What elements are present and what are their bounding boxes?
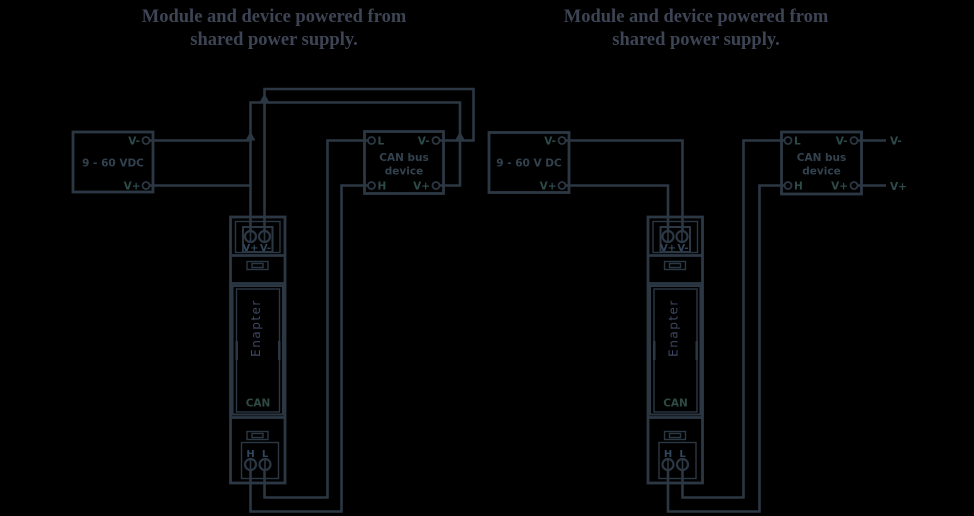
din-clip-icon	[252, 434, 263, 438]
can-vplus-label: V+	[831, 181, 848, 193]
can-device-name-line2: device	[802, 166, 840, 178]
module-side-notch	[653, 341, 656, 360]
left-can-device: CAN bus device L V- H V+	[365, 132, 444, 194]
module-side-notch	[236, 341, 239, 360]
can-h-label: H	[794, 181, 803, 193]
psu-vminus-label: V-	[544, 136, 556, 148]
can-l-terminal	[368, 137, 375, 144]
can-vminus-terminal	[851, 137, 858, 144]
psu-vplus-label: V+	[540, 181, 557, 193]
psu-vplus-terminal	[559, 182, 566, 189]
right-enapter-module: V+ V- Enapter CAN H L	[648, 217, 703, 483]
can-device-name-line2: device	[385, 166, 423, 178]
can-vminus-label: V-	[418, 136, 430, 148]
din-clip-icon	[247, 432, 268, 440]
module-vplus-label: V+	[660, 243, 676, 254]
net-vminus-label: V-	[890, 136, 902, 148]
can-vplus-terminal	[433, 182, 440, 189]
right-wire-can-l	[683, 141, 786, 498]
module-side-notch	[278, 341, 281, 360]
wiring-diagram-page: Module and device powered from shared po…	[0, 0, 974, 516]
can-vplus-label: V+	[413, 181, 430, 193]
can-vplus-terminal	[851, 182, 858, 189]
din-clip-icon	[247, 262, 268, 270]
net-vplus-label: V+	[890, 181, 907, 193]
module-port-label: CAN	[246, 398, 271, 410]
din-clip-icon	[665, 432, 686, 440]
right-wire-psu-vplus	[562, 186, 668, 237]
right-title-line2: shared power supply.	[612, 30, 779, 50]
din-clip-icon	[252, 264, 263, 268]
din-clip-icon	[665, 262, 686, 270]
psu-label: 9 - 60 VDC	[82, 158, 144, 170]
can-device-name-line1: CAN bus	[797, 152, 847, 164]
can-vminus-label: V-	[836, 136, 848, 148]
left-title-line1: Module and device powered from	[142, 7, 407, 27]
module-brand-label: Enapter	[249, 299, 263, 357]
can-device-name-line1: CAN bus	[379, 152, 429, 164]
module-vplus-label: V+	[242, 243, 258, 254]
din-clip-icon	[670, 264, 681, 268]
module-brand-label: Enapter	[667, 299, 681, 357]
module-port-label: CAN	[663, 398, 688, 410]
left-diagram: Module and device powered from shared po…	[73, 7, 474, 512]
module-vminus-label: V-	[677, 243, 688, 254]
wire-hop-arrow	[246, 132, 256, 141]
wire-hop-arrow	[260, 94, 270, 103]
din-clip-icon	[670, 434, 681, 438]
left-title-line2: shared power supply.	[190, 30, 357, 50]
right-diagram: Module and device powered from shared po…	[489, 7, 907, 512]
right-title-line1: Module and device powered from	[564, 7, 829, 27]
psu-vminus-terminal	[559, 137, 566, 144]
can-l-label: L	[794, 136, 801, 148]
psu-vminus-terminal	[143, 137, 150, 144]
psu-label: 9 - 60 V DC	[496, 158, 562, 170]
right-psu: 9 - 60 V DC V- V+	[489, 133, 569, 193]
can-h-terminal	[785, 182, 792, 189]
can-l-terminal	[785, 137, 792, 144]
psu-vminus-label: V-	[128, 136, 140, 148]
left-psu: 9 - 60 VDC V- V+	[73, 132, 153, 193]
psu-vplus-terminal	[143, 182, 150, 189]
wire-hop-arrow	[455, 132, 465, 141]
module-vminus-label: V-	[260, 243, 271, 254]
module-side-notch	[696, 341, 699, 360]
right-can-device: CAN bus device L V- H V+	[782, 132, 862, 194]
can-h-label: H	[378, 181, 387, 193]
can-vminus-terminal	[433, 137, 440, 144]
can-h-terminal	[368, 182, 375, 189]
left-enapter-module: V+ V- Enapter CAN H L	[231, 217, 286, 483]
can-l-label: L	[378, 136, 385, 148]
psu-vplus-label: V+	[124, 181, 141, 193]
